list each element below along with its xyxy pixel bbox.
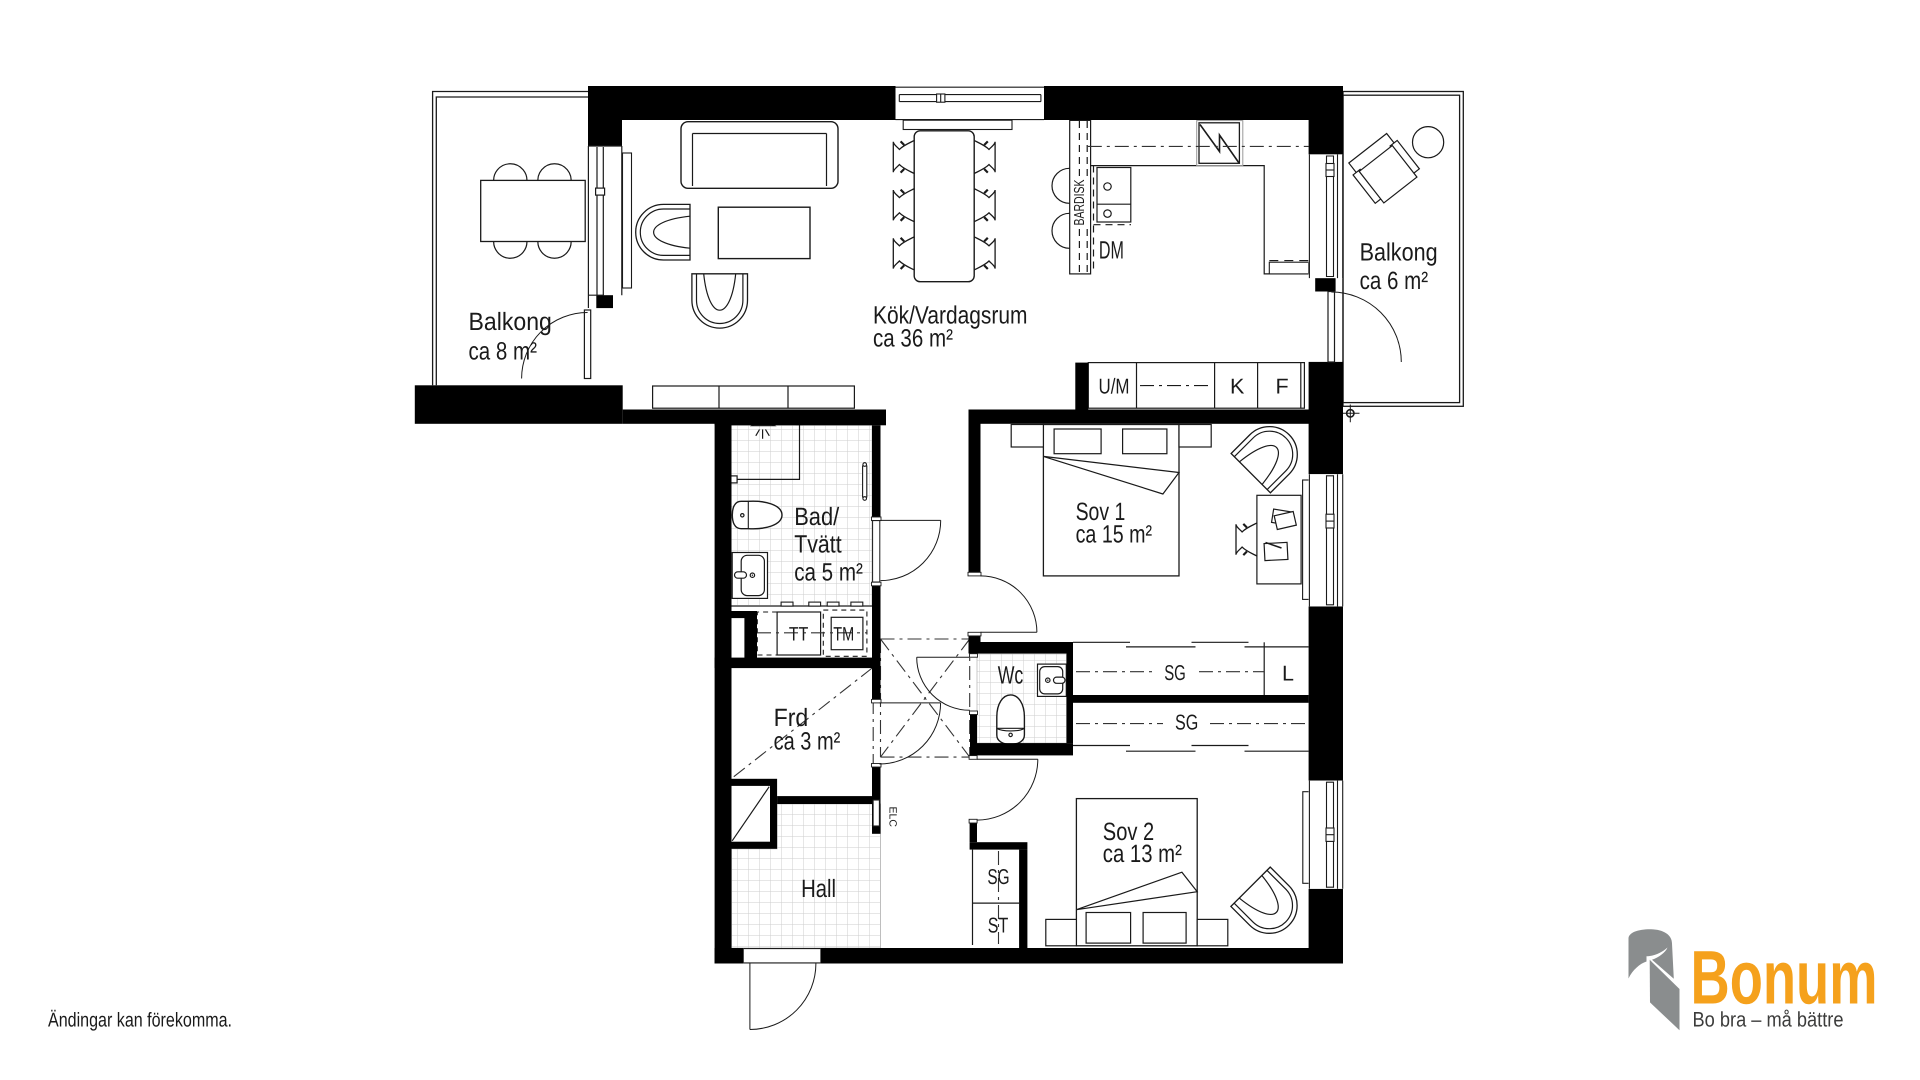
svg-text:SG: SG (1164, 661, 1186, 685)
svg-text:L: L (1282, 662, 1294, 686)
svg-text:Bo bra – må bättre: Bo bra – må bättre (1693, 1009, 1844, 1032)
svg-text:ca 5 m²: ca 5 m² (794, 558, 863, 586)
svg-text:Tvätt: Tvätt (794, 531, 842, 559)
svg-text:BARDISK: BARDISK (1072, 179, 1088, 225)
svg-text:Hall: Hall (801, 875, 836, 903)
svg-text:Balkong: Balkong (469, 308, 552, 336)
svg-text:ca 36 m²: ca 36 m² (873, 325, 953, 353)
svg-text:ca 3 m²: ca 3 m² (774, 728, 841, 756)
svg-text:TT: TT (789, 623, 808, 645)
svg-text:K: K (1230, 375, 1245, 399)
svg-text:U/M: U/M (1099, 375, 1130, 399)
svg-text:Wc: Wc (998, 662, 1024, 690)
svg-text:ca 6 m²: ca 6 m² (1360, 267, 1429, 295)
svg-text:Bonum: Bonum (1691, 935, 1878, 1020)
svg-text:TM: TM (833, 623, 854, 645)
svg-text:F: F (1276, 375, 1289, 399)
svg-text:ca 15 m²: ca 15 m² (1076, 521, 1153, 549)
svg-text:SG: SG (987, 865, 1009, 889)
svg-text:DM: DM (1099, 237, 1124, 265)
svg-text:ELC: ELC (887, 806, 899, 827)
svg-text:Bad/: Bad/ (794, 503, 839, 531)
svg-text:ST: ST (988, 914, 1009, 938)
svg-text:Balkong: Balkong (1360, 239, 1438, 267)
svg-text:ca 8 m²: ca 8 m² (469, 337, 538, 365)
svg-text:ca 13 m²: ca 13 m² (1103, 840, 1182, 868)
svg-text:Ändingar kan förekomma.: Ändingar kan förekomma. (48, 1010, 232, 1032)
svg-text:SG: SG (1175, 711, 1198, 735)
